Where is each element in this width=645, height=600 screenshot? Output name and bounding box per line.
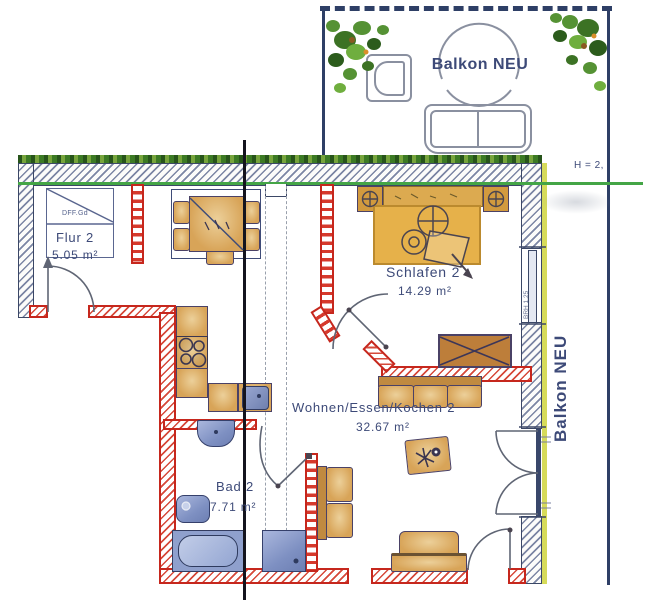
bed [373,205,481,265]
room-name-wohnen: Wohnen/Essen/Kochen 2 [292,400,455,415]
bedroom-door [333,294,389,350]
dining-chair [206,250,234,265]
balcony-label: Balkon NEU [424,56,536,74]
balcony-bench-divider [477,111,479,147]
window-note: BRH 1.25 [523,253,530,319]
balcony-double-door [496,431,538,514]
sofa2-cushion [326,503,353,538]
room-area-bad: 7.71 m² [210,500,256,514]
armchair [404,436,451,475]
kitchen-cabinet [176,306,208,337]
bedroom-partition-wall-angled [310,305,340,342]
duct-notch [265,184,287,197]
bedroom-divider-wall-end [362,340,395,373]
dining-table [189,196,245,252]
scan-smudge [540,190,612,214]
room-area-wohnen: 32.67 m² [356,420,410,434]
bedroom-partition-wall [320,184,334,314]
room-area-schlafen: 14.29 m² [398,284,452,298]
height-note: H = 2, [574,160,604,171]
flur-stub-wall [131,184,144,264]
bath-shower [262,530,306,572]
kitchen-cabinet [208,383,238,412]
right-wall-yellow-strip [542,163,547,584]
balcony-top-dashed-edge [320,6,612,11]
overhead-dashed-line-1 [265,186,266,566]
room-name-bad: Bad 2 [216,479,254,494]
left-wall [18,163,34,318]
dining-chair [243,201,260,224]
dining-chair [173,201,190,224]
nightstand [483,186,509,212]
entry-wall-left-piece [29,305,48,318]
bed-headboard [383,186,483,207]
bottom-wall-right [508,568,526,584]
room-area-flur: 5.05 m² [52,248,98,262]
kitchen-cabinet [176,368,208,398]
balcony-chair-seat [374,61,405,96]
sofa2-cushion [326,467,353,502]
closet-label: DFF.Gd [62,210,88,217]
room-name-flur: Flur 2 [56,230,94,245]
plant-icon [550,13,607,91]
bath-washbasin [197,420,235,447]
bedroom-dresser [438,334,512,368]
right-wall-upper [521,163,542,250]
kitchen-stove [176,336,208,369]
balcony-right-edge [607,8,610,585]
sideboard-base [391,553,467,572]
overhead-dashed-line-2 [286,186,287,566]
floor-plan: Balkon NEU Balkon NEU H = 2, BRH 1.25 DF… [0,0,645,600]
kitchen-sink-basin [242,386,269,410]
bath-tub-inner [178,535,238,567]
dining-chair [243,228,260,251]
terrace-door [468,528,513,571]
bath-toilet [176,495,210,523]
entrance-door [43,256,94,312]
balcony-side-label: Balkon NEU [551,316,571,442]
dining-chair [173,228,190,251]
room-name-schlafen: Schlafen 2 [386,264,460,280]
section-line [243,140,246,600]
balcony-left-edge [322,8,325,163]
balcony-door-glazing [536,429,541,516]
